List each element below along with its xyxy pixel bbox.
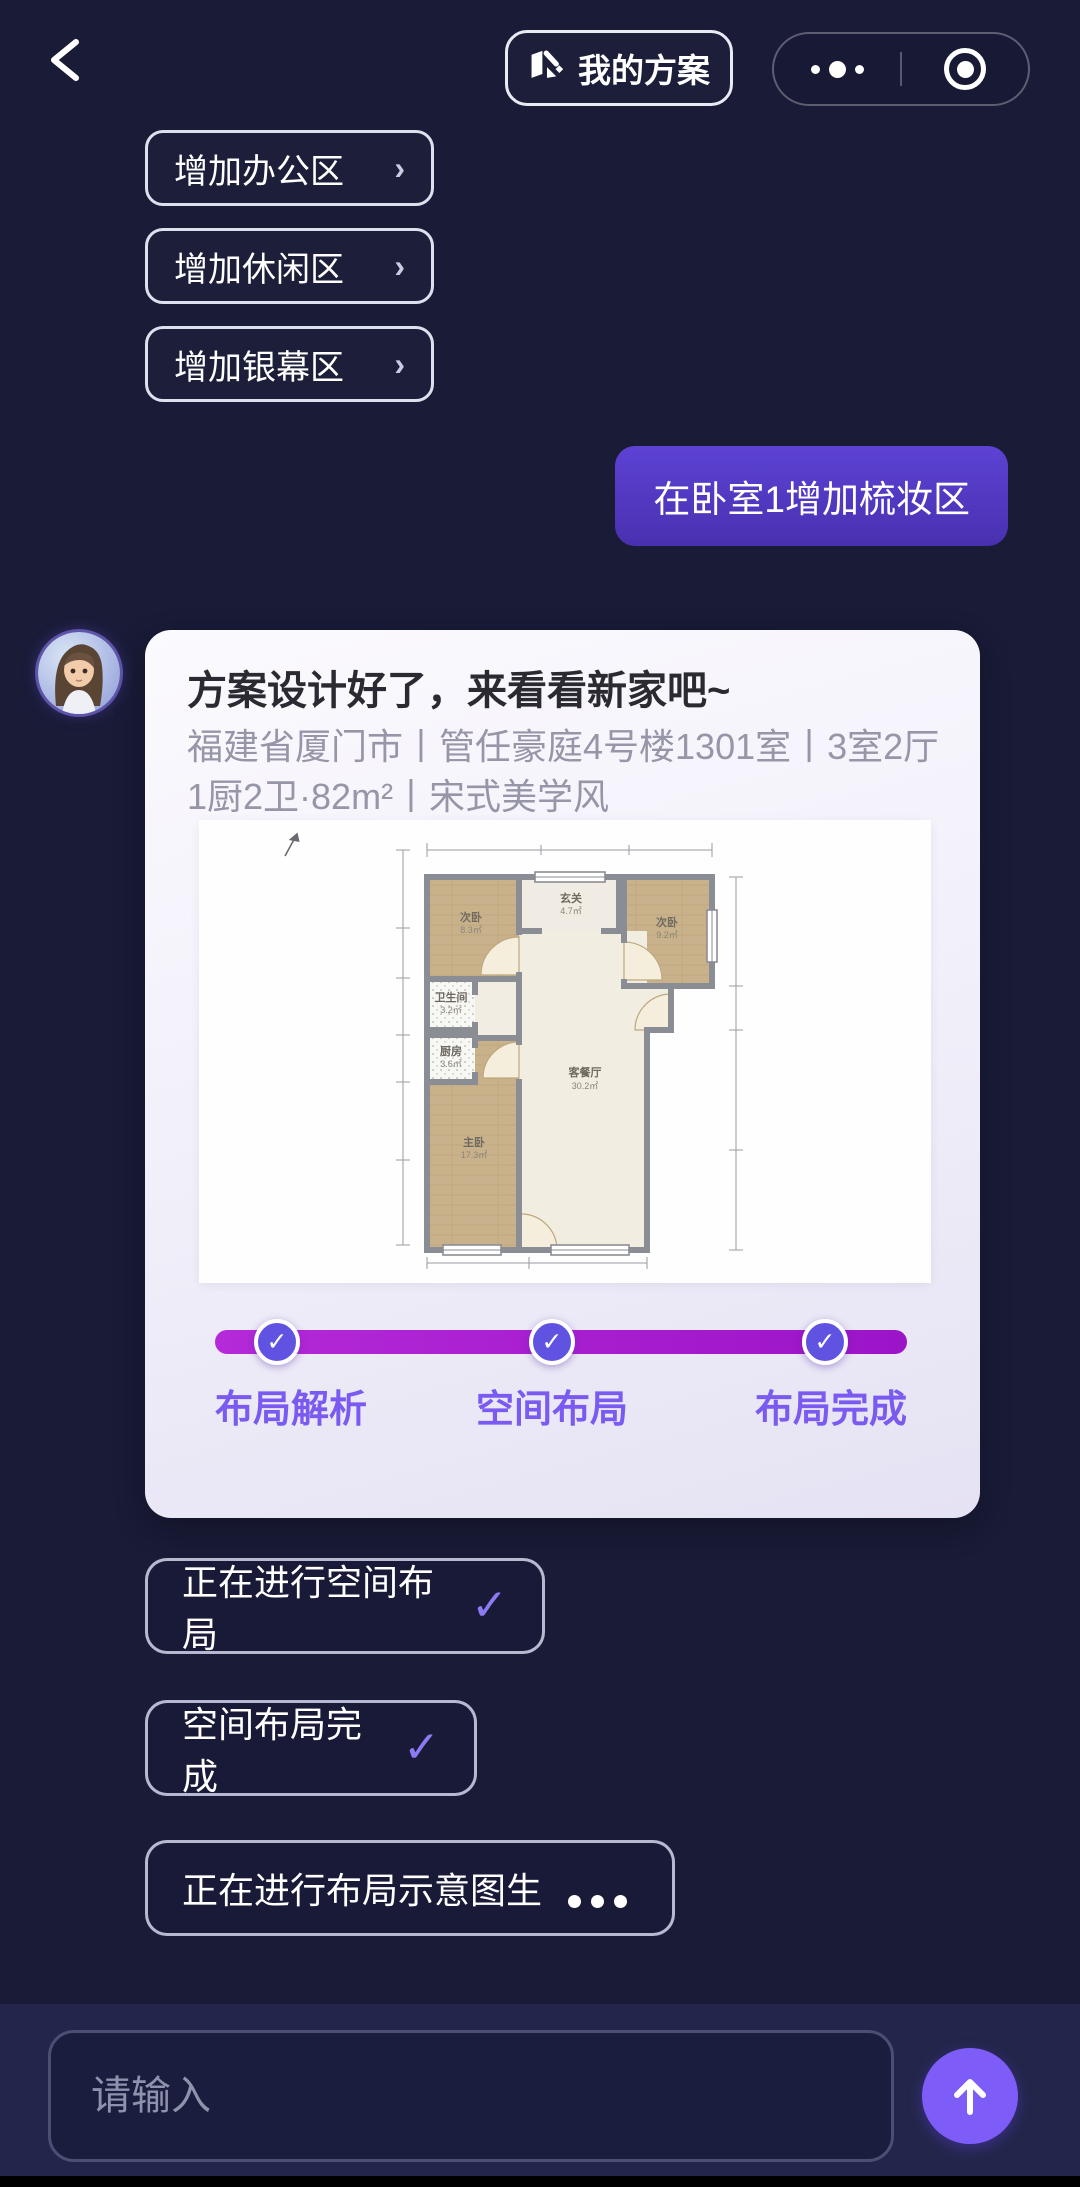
- minimize-button[interactable]: [902, 48, 1028, 90]
- room-label: 厨房: [440, 1044, 462, 1058]
- more-icon: [855, 65, 864, 74]
- suggestion-add-office-area[interactable]: 增加办公区 ›: [145, 130, 434, 206]
- room-area: 30.2㎡: [572, 1081, 599, 1091]
- plan-card-subtitle: 福建省厦门市丨管任豪庭4号楼1301室丨3室2厅1厨2卫·82m²丨宋式美学风: [187, 722, 945, 822]
- more-icon: [829, 61, 846, 78]
- composer-bar: [0, 2004, 1080, 2187]
- room-area: 8.3㎡: [460, 925, 482, 935]
- miniprogram-capsule: [772, 32, 1030, 106]
- progress-check-icon: ✓: [802, 1319, 848, 1365]
- room-label: 客餐厅: [568, 1065, 602, 1079]
- my-plan-button[interactable]: 我的方案: [505, 30, 733, 106]
- status-chip-diagram-generating: 正在进行布局示意图生: [145, 1840, 675, 1936]
- progress-step-label: 布局解析: [215, 1378, 367, 1433]
- home-indicator-strip: [0, 2176, 1080, 2187]
- suggestion-add-leisure-area[interactable]: 增加休闲区 ›: [145, 228, 434, 304]
- floorplan-drawing: 次卧 8.3㎡ 玄关 4.7㎡ 次卧 9.2㎡ 卫生间 3.2㎡ 厨房 3.6㎡…: [199, 820, 931, 1283]
- user-message-bubble: 在卧室1增加梳妆区: [615, 446, 1008, 546]
- suggestion-label: 增加银幕区: [174, 340, 344, 389]
- room-area: 9.2㎡: [656, 930, 678, 940]
- back-chevron-icon: [42, 34, 92, 86]
- folded-map-icon: [528, 47, 566, 89]
- status-chip-label: 正在进行布局示意图生: [182, 1862, 542, 1914]
- room-area: 4.7㎡: [560, 906, 582, 916]
- chevron-right-icon: ›: [394, 346, 405, 383]
- more-menu-button[interactable]: [774, 61, 900, 78]
- back-button[interactable]: [42, 34, 92, 86]
- check-icon: ✓: [403, 1726, 440, 1770]
- user-message-text: 在卧室1增加梳妆区: [653, 469, 970, 523]
- suggestion-label: 增加休闲区: [174, 242, 344, 291]
- assistant-plan-card: 方案设计好了，来看看新家吧~ 福建省厦门市丨管任豪庭4号楼1301室丨3室2厅1…: [145, 630, 980, 1518]
- room-label: 主卧: [463, 1135, 485, 1149]
- status-chip-label: 正在进行空间布局: [182, 1554, 449, 1658]
- chevron-right-icon: ›: [394, 150, 405, 187]
- send-button[interactable]: [922, 2048, 1018, 2144]
- progress-check-icon: ✓: [529, 1319, 575, 1365]
- message-input[interactable]: [48, 2030, 894, 2162]
- status-chip-label: 空间布局完成: [182, 1696, 381, 1800]
- up-arrow-icon: [946, 2072, 994, 2120]
- room-area: 3.6㎡: [440, 1059, 462, 1069]
- suggestion-add-screen-area[interactable]: 增加银幕区 ›: [145, 326, 434, 402]
- check-icon: ✓: [471, 1584, 508, 1628]
- floorplan-image[interactable]: 次卧 8.3㎡ 玄关 4.7㎡ 次卧 9.2㎡ 卫生间 3.2㎡ 厨房 3.6㎡…: [199, 820, 931, 1283]
- target-ring-icon: [944, 48, 986, 90]
- room-area: 17.3㎡: [461, 1150, 488, 1160]
- more-icon: [811, 65, 820, 74]
- avatar-girl-illustration: [38, 632, 120, 714]
- room-label: 次卧: [656, 915, 678, 929]
- assistant-avatar: [38, 632, 120, 714]
- room-label: 卫生间: [435, 990, 468, 1004]
- status-chip-space-layout-done: 空间布局完成 ✓: [145, 1700, 477, 1796]
- progress-step-label: 空间布局: [476, 1378, 628, 1433]
- app-screen: 我的方案 增加办公区 › 增加休闲区 › 增加银幕区 › 在卧室1增加梳妆区: [0, 0, 1080, 2187]
- loading-dots-icon: [568, 1868, 627, 1908]
- status-chip-space-layout-running: 正在进行空间布局 ✓: [145, 1558, 545, 1654]
- room-area: 3.2㎡: [440, 1005, 462, 1015]
- chevron-right-icon: ›: [394, 248, 405, 285]
- progress-step-label: 布局完成: [755, 1378, 907, 1433]
- room-label: 玄关: [560, 891, 582, 905]
- progress-check-icon: ✓: [254, 1319, 300, 1365]
- suggestion-label: 增加办公区: [174, 144, 344, 193]
- room-label: 次卧: [460, 910, 482, 924]
- my-plan-label: 我的方案: [578, 44, 710, 92]
- plan-card-title: 方案设计好了，来看看新家吧~: [187, 658, 730, 716]
